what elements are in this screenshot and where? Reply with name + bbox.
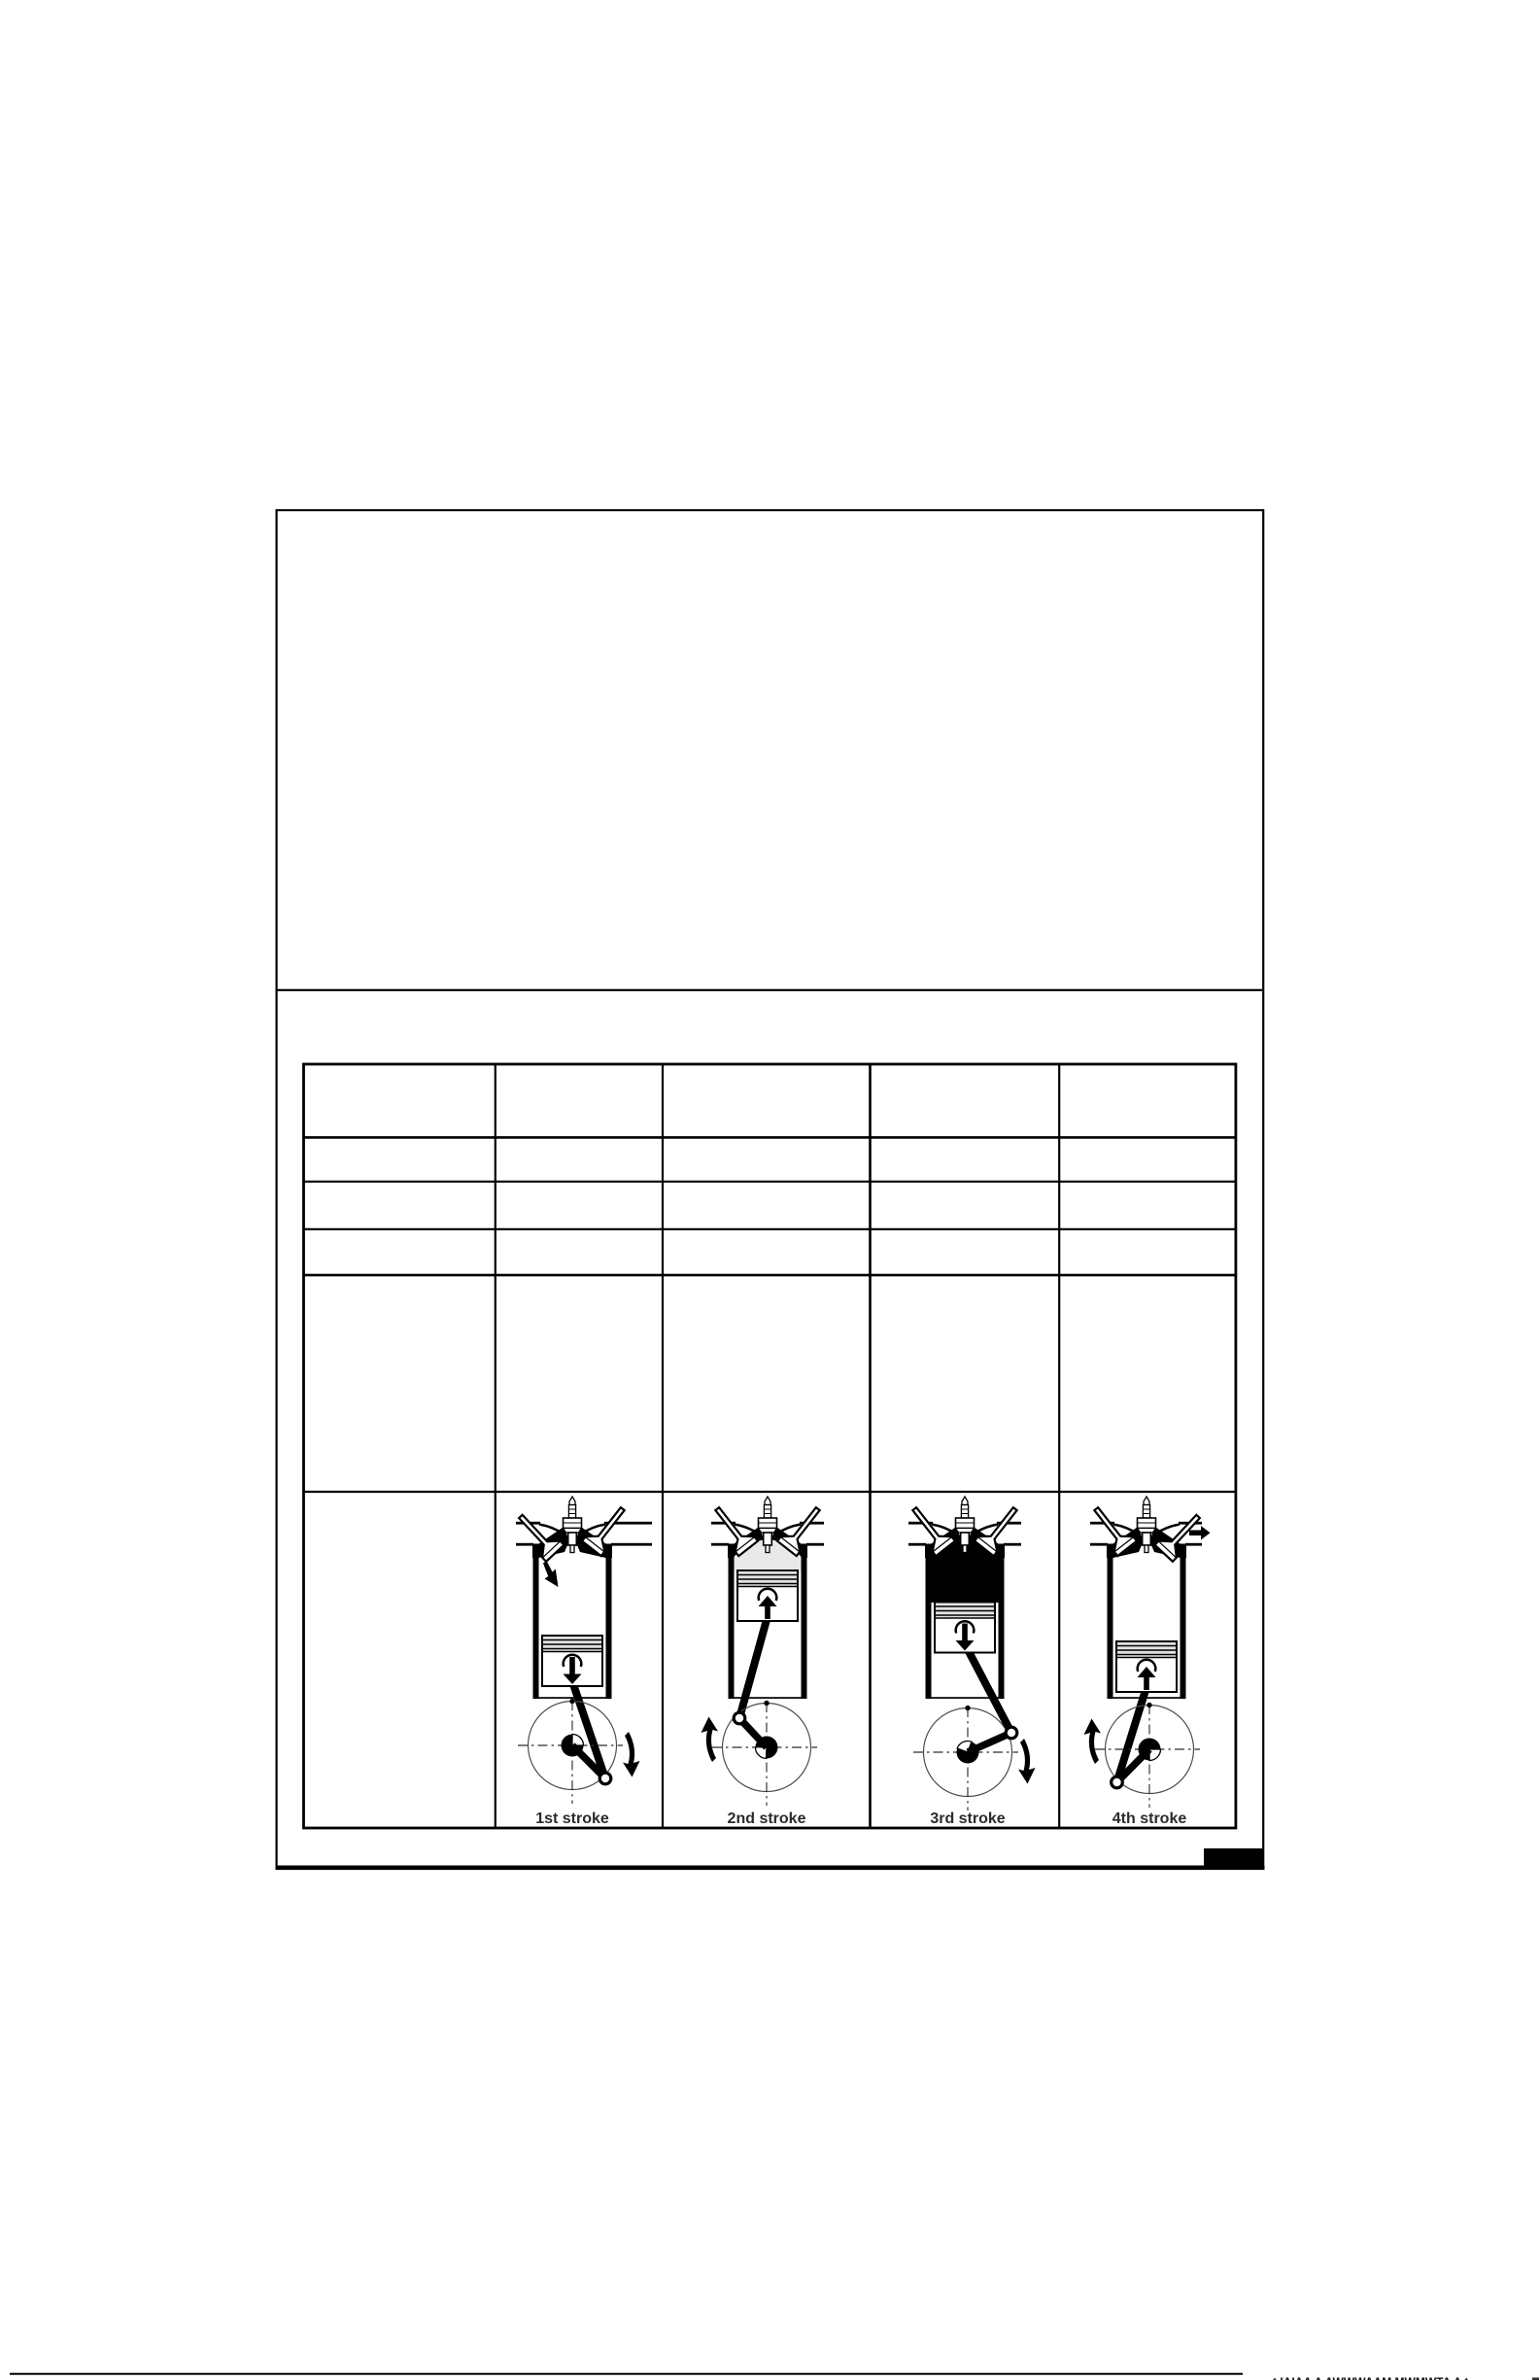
svg-text:3rd stroke: 3rd stroke [930, 1811, 1005, 1827]
svg-text:2nd stroke: 2nd stroke [728, 1811, 806, 1827]
svg-text:1st stroke: 1st stroke [535, 1811, 609, 1827]
svg-text:4th stroke: 4th stroke [1112, 1811, 1187, 1827]
svg-text:t IAIAA A AWWWAAM MWMWTA A: t IAIAA A AWWWAAM MWMWTA A t [1273, 2375, 1468, 2380]
